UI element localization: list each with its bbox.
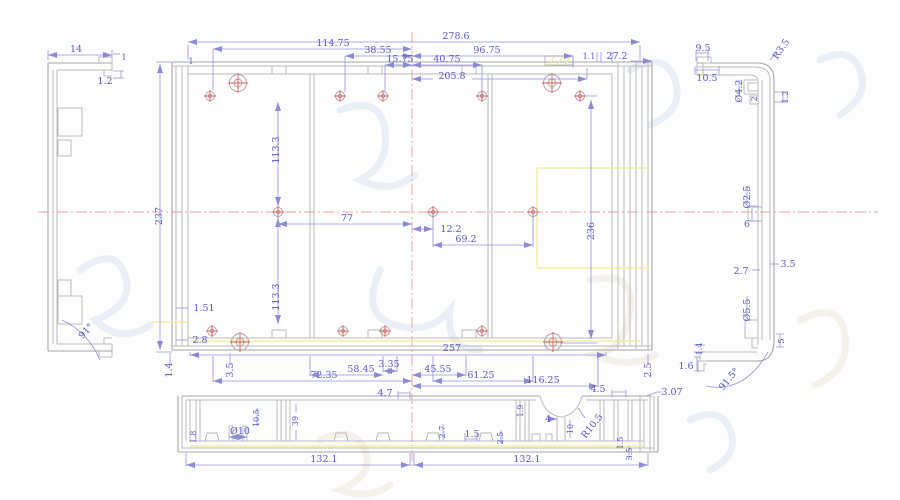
main-left-dims: 1.51 2.8 113.3 113.3 1.4 3.5 237 [154, 62, 282, 378]
dim-label: Ø4.2 [734, 80, 745, 103]
dim-label: 96.75 [473, 45, 500, 56]
dim-label: 45.55 [424, 364, 451, 375]
dim-label: 2.7 [438, 426, 447, 439]
highlight-lines [152, 168, 650, 341]
dim-label: 3.5 [780, 259, 795, 270]
dim-label: 1.51 [193, 303, 214, 314]
dimensions: 14 1 1.2 91° 1 278.6 114.75 38.55 96.75 … [48, 31, 796, 466]
dim-label: 2.5 [643, 362, 654, 377]
dim-label: 2.5 [496, 432, 505, 445]
dim-label: R3.5 [771, 37, 793, 62]
dim-label: 4.5 [590, 384, 605, 395]
dim-label: 14 [70, 44, 82, 55]
dim-label: 40.75 [433, 54, 460, 65]
dim-label: 27.2 [606, 51, 627, 62]
dim-label: 132.1 [310, 454, 337, 465]
dim-label: 1.8 [189, 431, 198, 444]
cad-drawing-canvas: 14 1 1.2 91° 1 278.6 114.75 38.55 96.75 … [0, 0, 900, 500]
right-side-view [697, 57, 774, 371]
dim-label: 61.25 [467, 370, 494, 381]
dim-label: 3.5 [625, 448, 634, 461]
dim-label: 5 [777, 338, 786, 343]
dim-label: 58.45 [347, 364, 374, 375]
dim-label: 1 [188, 57, 193, 66]
dim-label: 1.4 [695, 343, 704, 356]
dim-label: 113.3 [271, 283, 282, 310]
dim-label: 116.25 [526, 375, 559, 386]
dim-label: 1.9 [516, 405, 525, 418]
hole-markers [204, 73, 586, 352]
dim-label: 4.7 [377, 388, 392, 399]
dim-label: 6 [744, 219, 750, 230]
dim-label: 91.5° [717, 366, 742, 393]
left-side-view [48, 57, 112, 357]
dim-label: 114.75 [316, 38, 349, 49]
dim-label: Ø10 [230, 426, 250, 437]
dim-label: 10.5 [696, 73, 717, 84]
dim-label: Ø5.5 [742, 299, 753, 322]
dim-label: 3.5 [225, 362, 236, 377]
dim-label: 1.2 [781, 91, 790, 104]
dim-label: 1.6 [678, 361, 693, 372]
dim-label: 2 [750, 96, 759, 101]
dim-label: 10 [566, 424, 575, 434]
main-plan-view [152, 56, 652, 352]
dim-label: 4 [545, 414, 551, 425]
dim-label: 9.5 [695, 43, 710, 54]
dim-label: 205.8 [438, 71, 465, 82]
dim-label: 1.4 [164, 362, 175, 377]
dim-label: 15.75 [386, 54, 413, 65]
dim-label: 72.35 [310, 370, 337, 381]
right-view-dims: 9.5 10.5 R3.5 Ø4.2 2 1.2 Ø2.5 6 3.5 2.7 … [678, 37, 795, 393]
dim-label: 278.6 [442, 31, 469, 42]
dim-label: 1.1 [583, 52, 596, 61]
dim-label: Ø2.5 [742, 186, 753, 209]
dim-label: 3.07 [661, 387, 682, 398]
dim-label: 1.2 [97, 76, 112, 87]
main-middle-dims: 77 12.2 69.2 [278, 213, 533, 247]
dim-label: 77 [341, 213, 353, 224]
dim-label: 113.3 [271, 136, 282, 163]
dim-label: 1.5 [464, 429, 479, 440]
dim-label: 2.8 [192, 335, 207, 346]
dim-label: 10.5 [252, 409, 261, 427]
dim-label: 69.2 [455, 234, 476, 245]
dim-label: 257 [443, 343, 461, 354]
dim-label: 3.35 [378, 359, 399, 370]
dim-label: 2.7 [733, 266, 748, 277]
main-right-dims: 236 2.5 [560, 96, 654, 378]
dim-label: 1.5 [616, 437, 625, 450]
dim-label: 39 [291, 416, 300, 426]
drawing-svg: 14 1 1.2 91° 1 278.6 114.75 38.55 96.75 … [0, 0, 900, 500]
dim-label: 132.1 [513, 454, 540, 465]
dim-label: 236 [586, 222, 597, 240]
dim-label: 237 [154, 207, 165, 225]
dim-label: 1 [121, 53, 126, 62]
